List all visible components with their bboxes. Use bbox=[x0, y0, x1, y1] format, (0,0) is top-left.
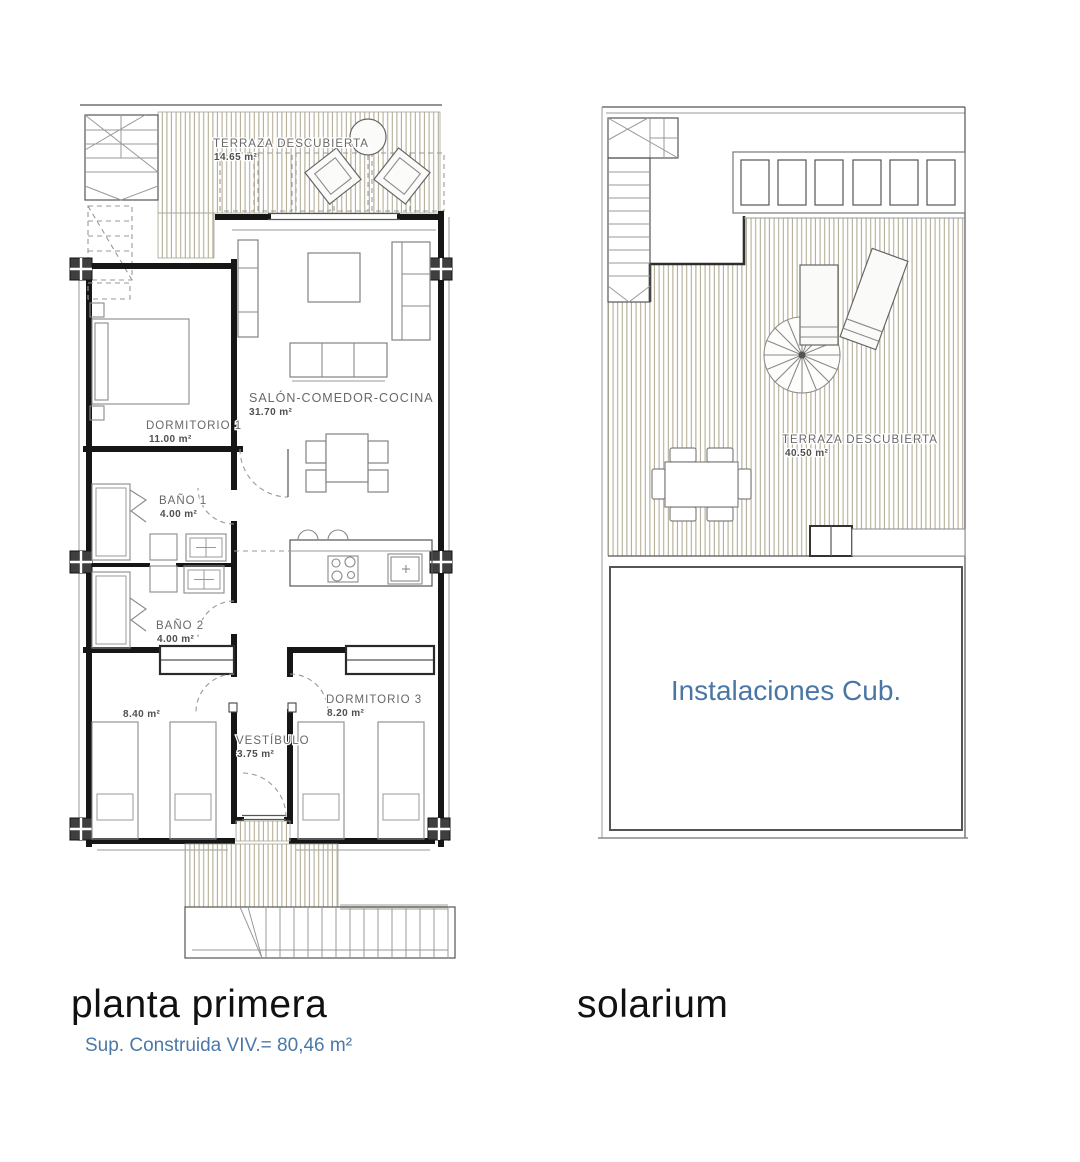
floorplan-drawing: TERRAZA DESCUBIERTA 14.65 m² SALÓN-COMED… bbox=[0, 0, 1080, 965]
kitchen-counter bbox=[234, 530, 432, 586]
chaise-icon bbox=[238, 240, 258, 337]
door-jamb bbox=[229, 703, 237, 712]
folding-door-icon bbox=[130, 598, 146, 631]
porch-deck-hatch bbox=[236, 821, 290, 841]
label-dormitorio1: DORMITORIO 1 bbox=[146, 420, 242, 432]
washbasin-icon bbox=[186, 534, 226, 561]
staircase-bottom bbox=[185, 904, 455, 958]
sink-icon bbox=[388, 554, 422, 584]
hob-icon bbox=[328, 556, 358, 582]
nightstand-icon bbox=[90, 303, 104, 317]
label-terraza-solarium: TERRAZA DESCUBIERTA bbox=[782, 434, 938, 446]
floor-plan-solarium: TERRAZA DESCUBIERTA 40.50 m² Instalacion… bbox=[598, 107, 968, 838]
shower-icon bbox=[92, 484, 130, 560]
floorplan-page: TERRAZA DESCUBIERTA 14.65 m² SALÓN-COMED… bbox=[0, 0, 1080, 1162]
shower-icon bbox=[92, 572, 130, 648]
label-salon: SALÓN-COMEDOR-COCINA bbox=[249, 390, 434, 405]
label-dormitorio3-area: 8.20 m² bbox=[327, 708, 365, 719]
toilet-icon bbox=[150, 566, 177, 592]
label-bano1: BAÑO 1 bbox=[159, 494, 207, 507]
double-bed-icon bbox=[92, 319, 189, 404]
floor-plan-planta-primera: TERRAZA DESCUBIERTA 14.65 m² SALÓN-COMED… bbox=[70, 105, 455, 958]
folding-door-icon bbox=[130, 490, 146, 522]
label-terraza-solarium-area: 40.50 m² bbox=[785, 448, 828, 459]
coffee-table-icon bbox=[308, 253, 360, 302]
caption-built-area: Sup. Construida VIV.= 80,46 m² bbox=[85, 1035, 352, 1057]
label-salon-area: 31.70 m² bbox=[249, 407, 292, 418]
label-vestibulo-area: 3.75 m² bbox=[237, 749, 275, 760]
door-jamb bbox=[288, 703, 296, 712]
living-room-furniture bbox=[238, 240, 430, 492]
label-vestibulo: VESTÍBULO bbox=[236, 734, 310, 747]
caption-solarium: solarium bbox=[577, 983, 728, 1027]
stool-icon bbox=[328, 530, 348, 540]
toilet-icon bbox=[150, 534, 177, 560]
caption-planta-primera: planta primera bbox=[71, 983, 327, 1027]
label-dormitorio2-area: 8.40 m² bbox=[123, 709, 161, 720]
terrace-deck-hatch-side bbox=[158, 213, 214, 258]
label-dormitorio3: DORMITORIO 3 bbox=[326, 694, 422, 706]
staircase-icon bbox=[85, 115, 158, 200]
nightstand-icon bbox=[90, 406, 104, 420]
washbasin-icon bbox=[184, 566, 224, 593]
sofa-bottom-icon bbox=[290, 343, 387, 381]
label-bano2-area: 4.00 m² bbox=[157, 634, 195, 645]
dining-table-icon bbox=[306, 434, 388, 492]
roof-vent bbox=[810, 526, 965, 556]
label-instalaciones: Instalaciones Cub. bbox=[671, 675, 901, 706]
stool-icon bbox=[298, 530, 318, 540]
pergola-strip bbox=[733, 152, 965, 213]
label-dormitorio1-area: 11.00 m² bbox=[149, 434, 192, 445]
entry-door-arc bbox=[242, 773, 286, 817]
bedroom1-furniture bbox=[88, 283, 189, 420]
label-bano2: BAÑO 2 bbox=[156, 619, 204, 632]
sun-lounger-icon bbox=[800, 265, 838, 345]
door-arc bbox=[196, 674, 234, 712]
label-terraza-area: 14.65 m² bbox=[214, 152, 257, 163]
sofa-right-icon bbox=[392, 242, 430, 340]
label-bano1-area: 4.00 m² bbox=[160, 509, 198, 520]
porch-deck-hatch bbox=[185, 844, 338, 907]
label-terraza: TERRAZA DESCUBIERTA bbox=[213, 138, 369, 150]
door-arc bbox=[240, 449, 288, 497]
